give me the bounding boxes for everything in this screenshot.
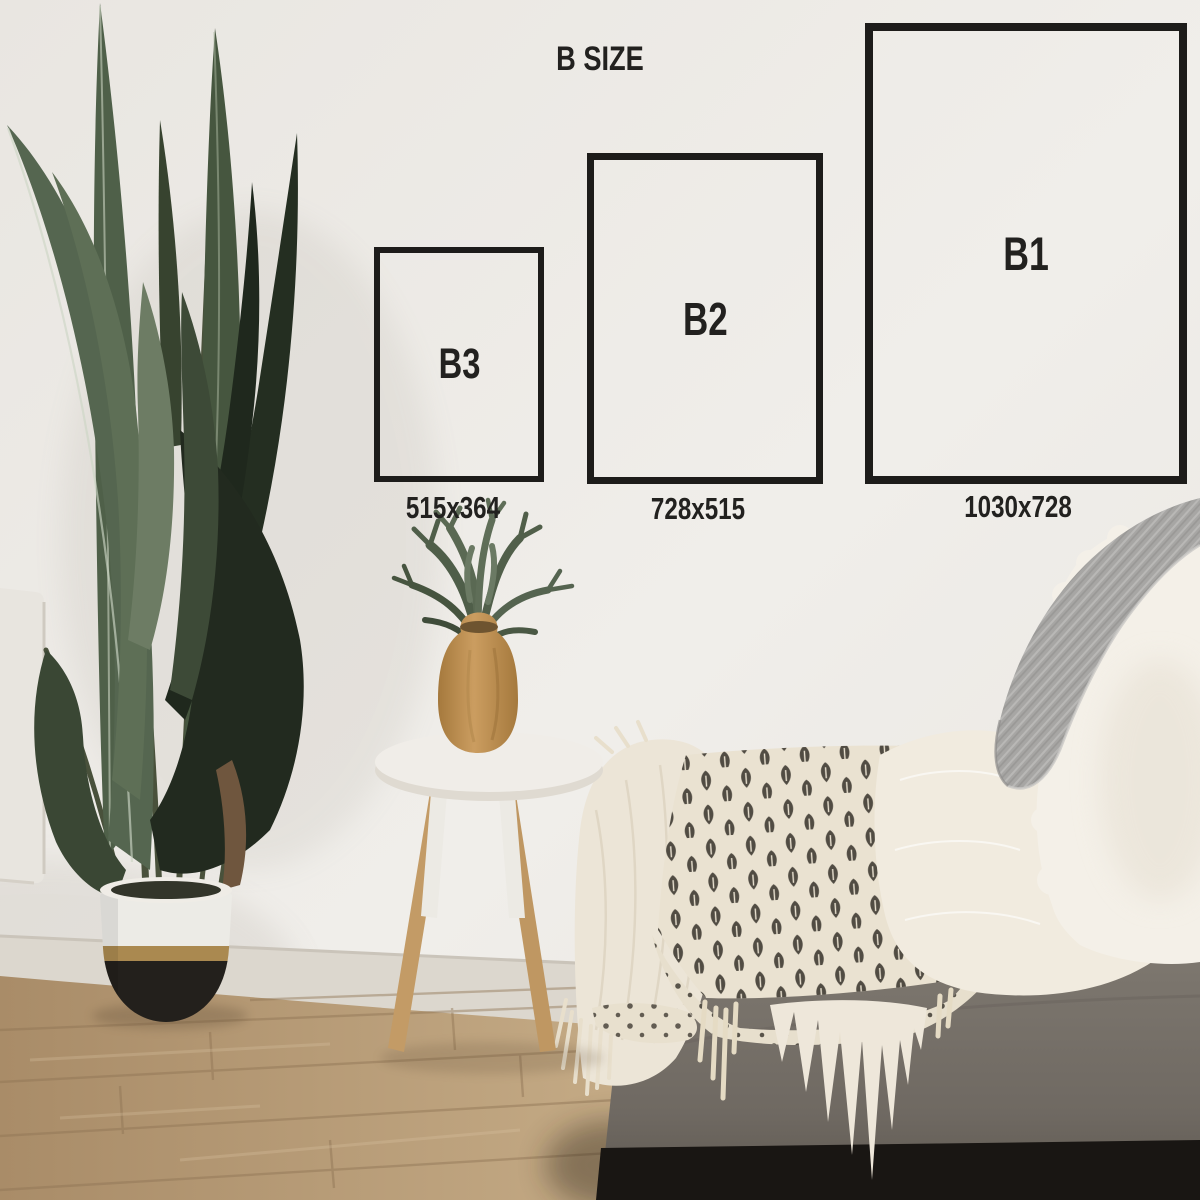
size-label-b1: B1 [1003, 226, 1049, 281]
size-frame-b2: B2 [587, 153, 823, 484]
size-frame-b3: B3 [374, 247, 544, 482]
poster-size-guide-photo: B SIZE B1 B2 B3 1030x728 728x515 515x364 [0, 0, 1200, 1200]
size-label-b2: B2 [683, 292, 728, 346]
size-label-b3: B3 [438, 340, 480, 389]
dimensions-b3: 515x364 [375, 490, 531, 526]
dimensions-b1: 1030x728 [940, 489, 1096, 525]
size-guide-overlay: B SIZE B1 B2 B3 1030x728 728x515 515x364 [0, 0, 1200, 1200]
page-title: B SIZE [520, 40, 680, 79]
dimensions-b2: 728x515 [620, 491, 776, 527]
size-frame-b1: B1 [865, 23, 1187, 484]
